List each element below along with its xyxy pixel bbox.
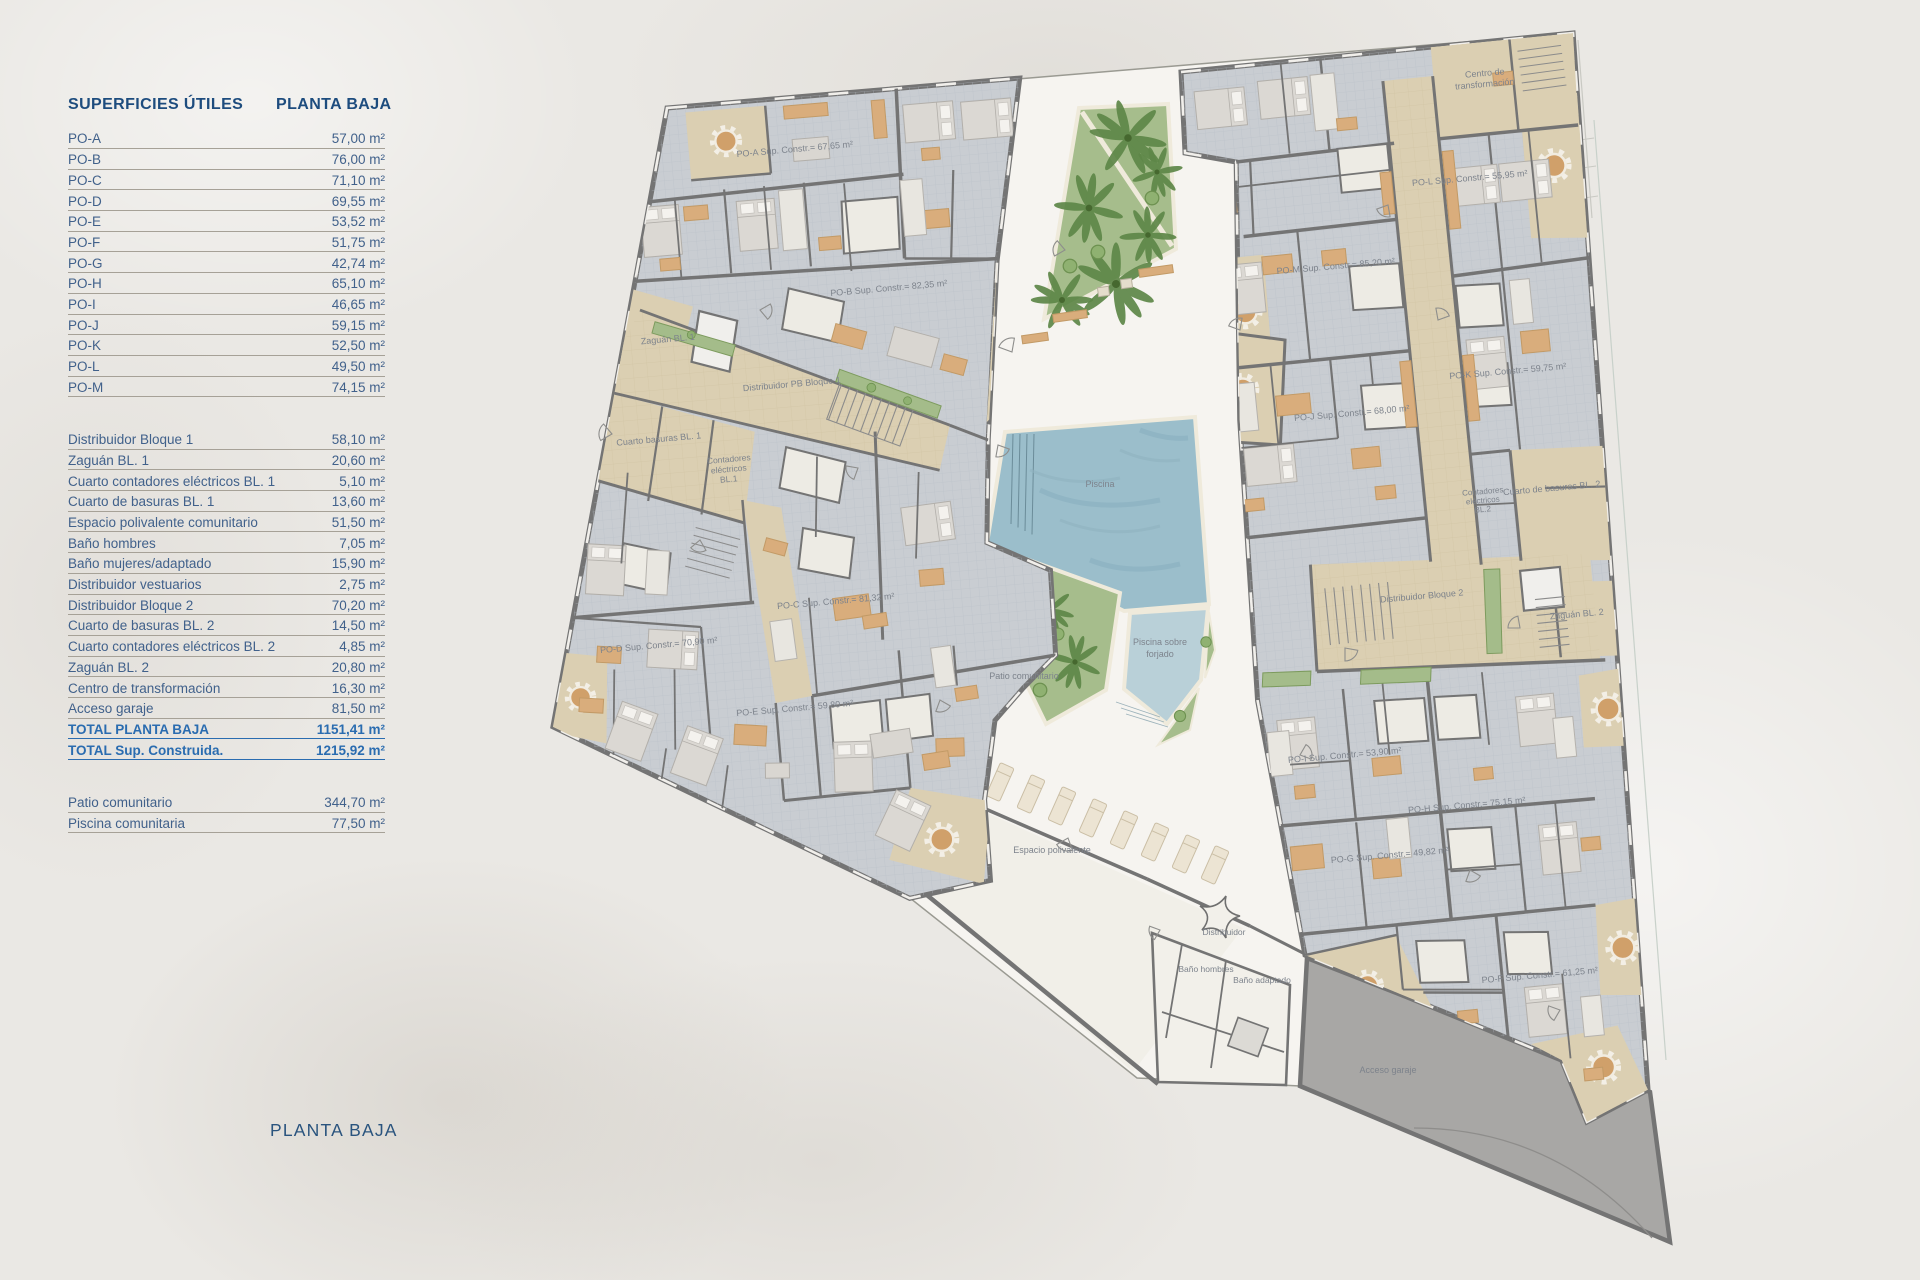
- svg-text:Piscina sobre: Piscina sobre: [1133, 637, 1187, 647]
- svg-text:Piscina: Piscina: [1085, 479, 1114, 489]
- svg-text:BL.2: BL.2: [1474, 504, 1492, 514]
- svg-text:Distribuidor: Distribuidor: [1203, 927, 1246, 937]
- svg-text:Acceso garaje: Acceso garaje: [1359, 1065, 1416, 1075]
- svg-text:Patio comunitario: Patio comunitario: [989, 671, 1059, 681]
- svg-text:Baño hombres: Baño hombres: [1178, 964, 1233, 974]
- svg-text:forjado: forjado: [1146, 649, 1174, 659]
- svg-text:Baño adaptado: Baño adaptado: [1233, 975, 1291, 985]
- svg-text:BL.1: BL.1: [720, 473, 739, 485]
- svg-text:Espacio polivalente: Espacio polivalente: [1013, 845, 1091, 855]
